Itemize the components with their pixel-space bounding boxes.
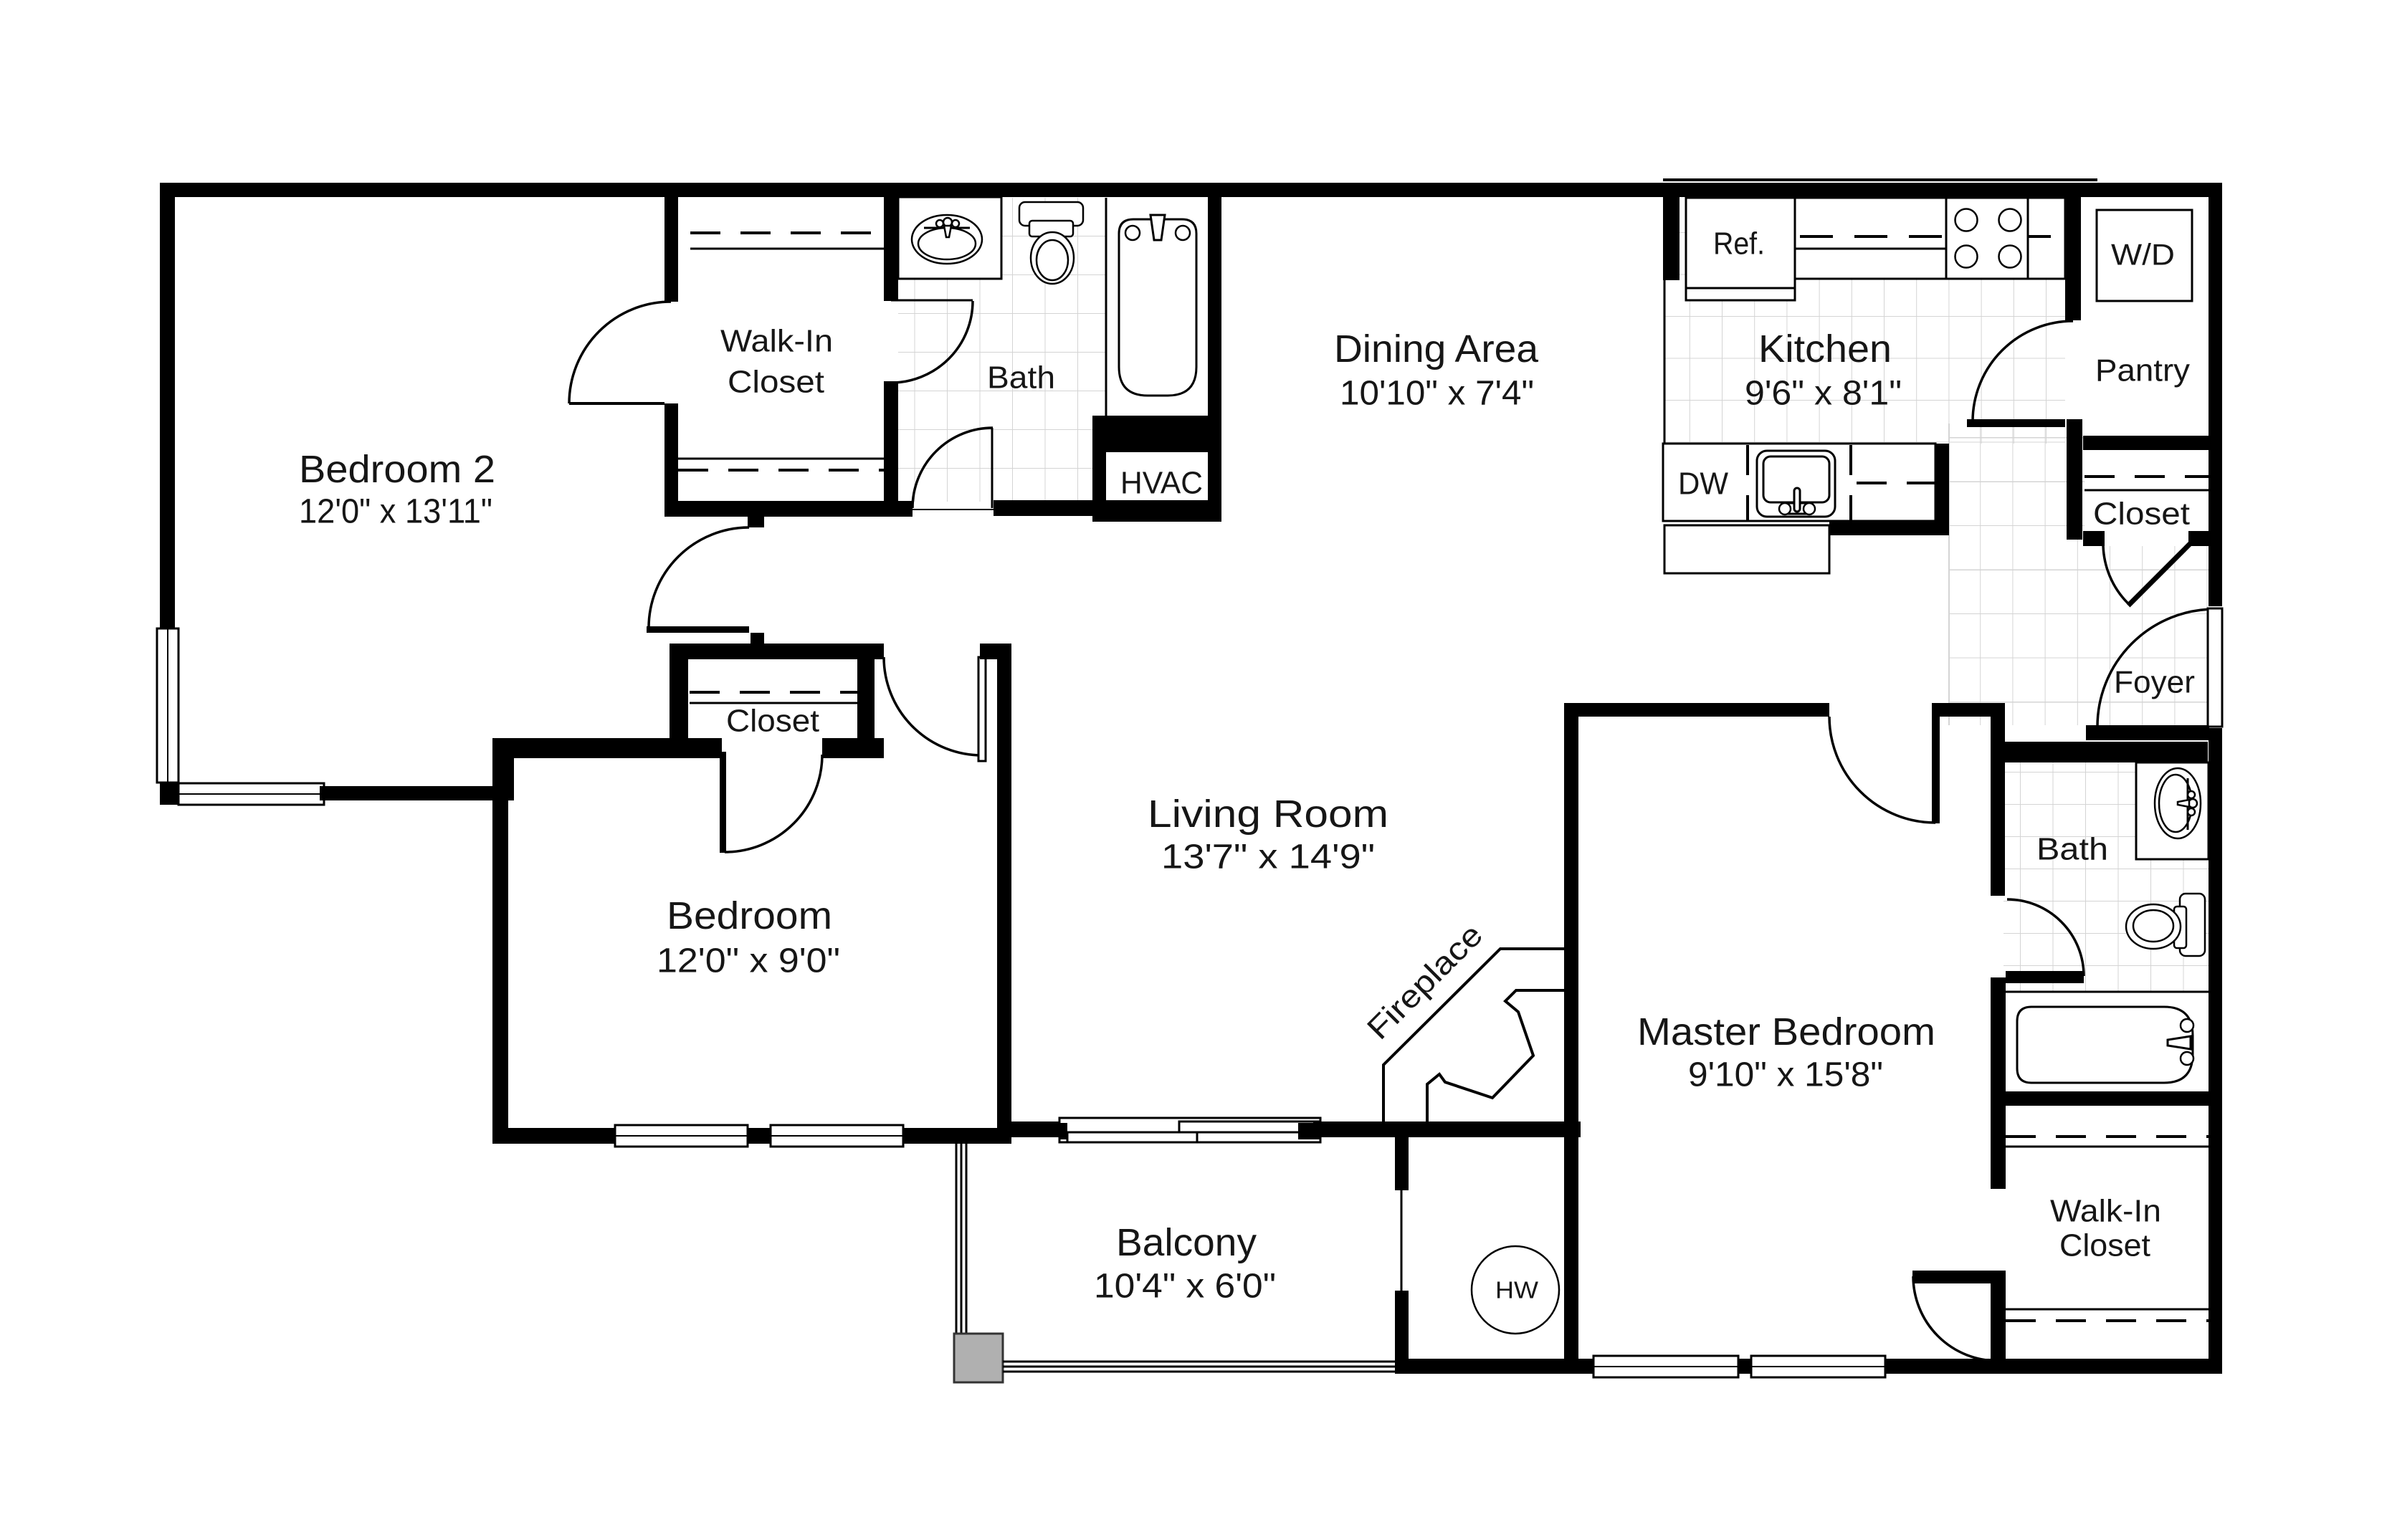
svg-text:Walk-In: Walk-In (2050, 1194, 2161, 1229)
svg-text:Closet: Closet (728, 365, 824, 400)
svg-text:10'4" x 6'0": 10'4" x 6'0" (1094, 1268, 1276, 1306)
svg-text:13'7" x 14'9": 13'7" x 14'9" (1161, 838, 1375, 876)
svg-text:12'0" x 9'0": 12'0" x 9'0" (657, 942, 840, 980)
svg-text:DW: DW (1678, 467, 1728, 502)
svg-text:9'10" x 15'8": 9'10" x 15'8" (1688, 1056, 1883, 1094)
svg-text:HW: HW (1495, 1277, 1539, 1304)
svg-text:HVAC: HVAC (1120, 466, 1203, 501)
svg-text:Living Room: Living Room (1148, 793, 1388, 836)
svg-text:12'0" x 13'11": 12'0" x 13'11" (299, 493, 492, 531)
svg-text:10'10" x 7'4": 10'10" x 7'4" (1340, 375, 1534, 413)
svg-text:Master Bedroom: Master Bedroom (1637, 1010, 1935, 1053)
svg-text:Closet: Closet (2059, 1228, 2150, 1263)
svg-text:Closet: Closet (726, 704, 819, 739)
svg-text:Kitchen: Kitchen (1758, 327, 1892, 370)
svg-text:Balcony: Balcony (1116, 1221, 1257, 1264)
svg-text:Ref.: Ref. (1713, 226, 1765, 262)
svg-text:Dining Area: Dining Area (1334, 327, 1539, 370)
svg-text:9'6" x 8'1": 9'6" x 8'1" (1745, 375, 1902, 413)
svg-text:Closet: Closet (2093, 497, 2190, 532)
svg-text:Bath: Bath (2036, 832, 2108, 867)
svg-text:Foyer: Foyer (2114, 665, 2195, 700)
svg-text:Bedroom 2: Bedroom 2 (299, 448, 495, 491)
svg-text:Bedroom: Bedroom (667, 894, 832, 937)
svg-text:Walk-In: Walk-In (720, 324, 833, 359)
svg-text:Bath: Bath (987, 360, 1055, 396)
svg-text:W/D: W/D (2111, 238, 2175, 272)
svg-text:Pantry: Pantry (2095, 353, 2190, 388)
